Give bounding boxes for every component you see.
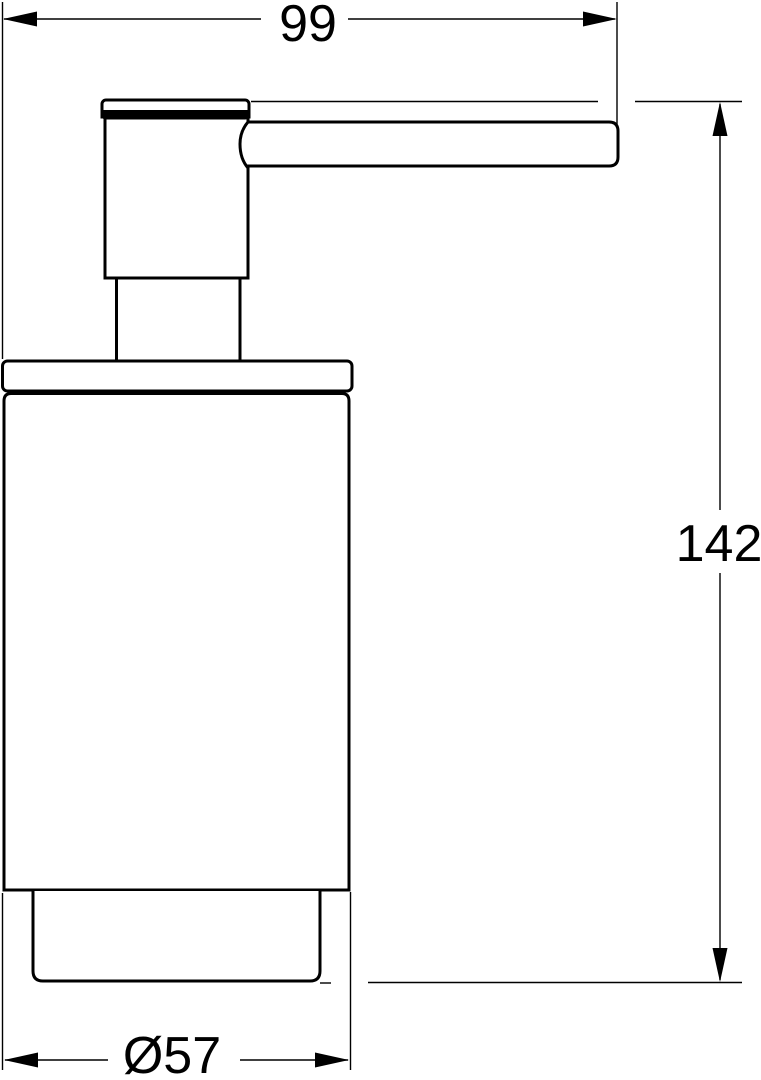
glass-container — [4, 394, 349, 891]
container-foot — [33, 891, 320, 981]
height-arrowhead-top — [713, 102, 728, 136]
height-dimension-label: 142 — [676, 515, 761, 573]
drawing-sheet: 99 142 Ø57 — [0, 0, 761, 1080]
width-arrowhead-right — [583, 12, 617, 27]
diameter-dimension-label: Ø57 — [123, 1027, 221, 1080]
width-dimension-label: 99 — [279, 0, 337, 53]
diameter-arrowhead-right — [315, 1053, 349, 1068]
holder-ring — [3, 361, 353, 391]
dispenser-outline — [3, 100, 619, 983]
pump-cap-band — [101, 110, 251, 119]
technical-drawing: 99 142 Ø57 — [0, 0, 761, 1080]
dimension-width: 99 — [3, 0, 618, 359]
pump-head — [105, 116, 248, 278]
height-arrowhead-bottom — [713, 948, 728, 982]
pump-spout-arm — [246, 122, 618, 166]
diameter-arrowhead-left — [4, 1053, 38, 1068]
width-arrowhead-left — [3, 12, 37, 27]
